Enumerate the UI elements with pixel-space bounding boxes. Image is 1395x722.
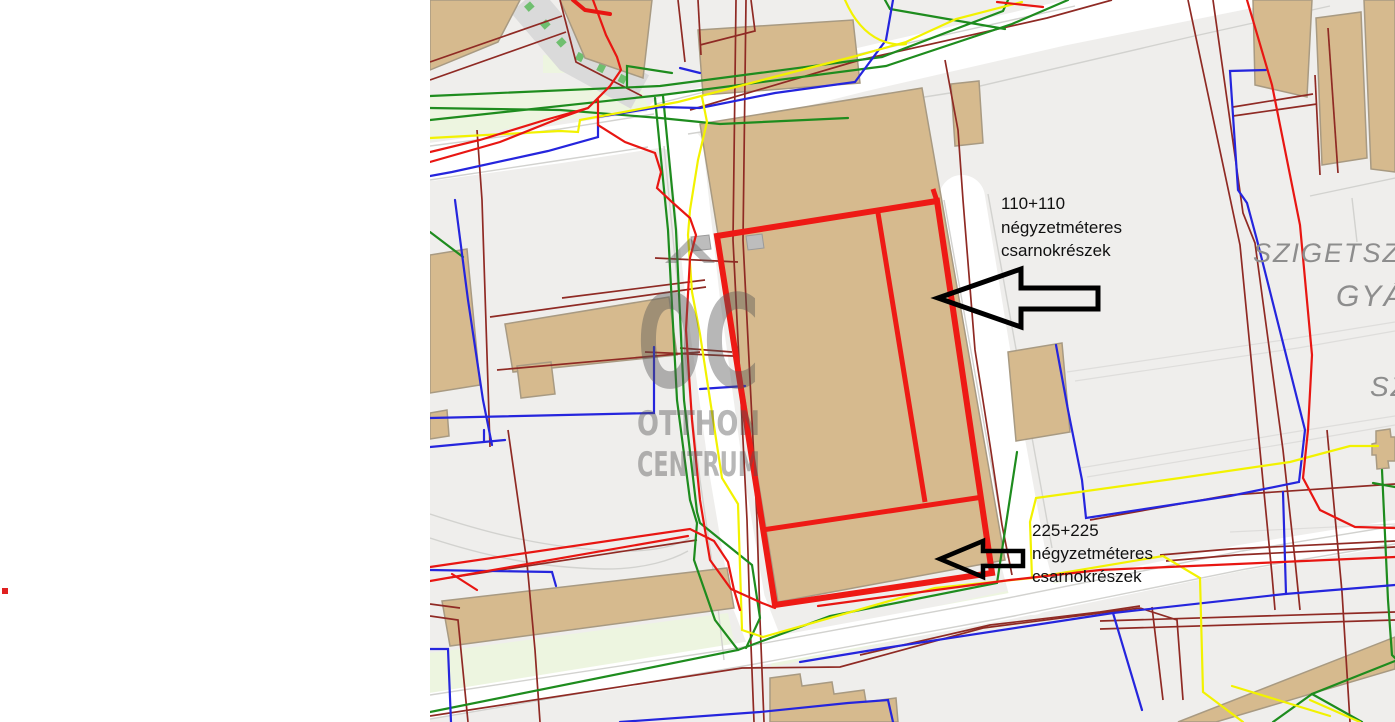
watermark-logo: OC OTTHON CENTRUM (637, 238, 760, 485)
annotation-110-line2: négyzetméteres (1001, 218, 1122, 237)
map-screenshot: OC OTTHON CENTRUM SZIGETSZ GYÁ SZ 110+11… (0, 0, 1395, 722)
stray-red-dot (2, 588, 8, 594)
watermark-centrum: CENTRUM (637, 445, 760, 485)
watermark-otthon: OTTHON (637, 404, 760, 444)
watermark-oc: OC (637, 268, 760, 418)
area-label-szigetsz: SZIGETSZ (1253, 238, 1395, 268)
area-label-sz: SZ (1370, 371, 1395, 402)
annotation-225-line1: 225+225 (1032, 521, 1099, 540)
annotation-110-line1: 110+110 (1001, 194, 1065, 213)
map-canvas[interactable]: OC OTTHON CENTRUM SZIGETSZ GYÁ SZ 110+11… (0, 0, 1395, 722)
annotation-225-line2: négyzetméteres (1032, 544, 1153, 563)
area-label-gya: GYÁ (1336, 280, 1395, 313)
annotation-225-line3: csarnokrészek (1032, 567, 1142, 586)
annotation-110-line3: csarnokrészek (1001, 241, 1111, 260)
